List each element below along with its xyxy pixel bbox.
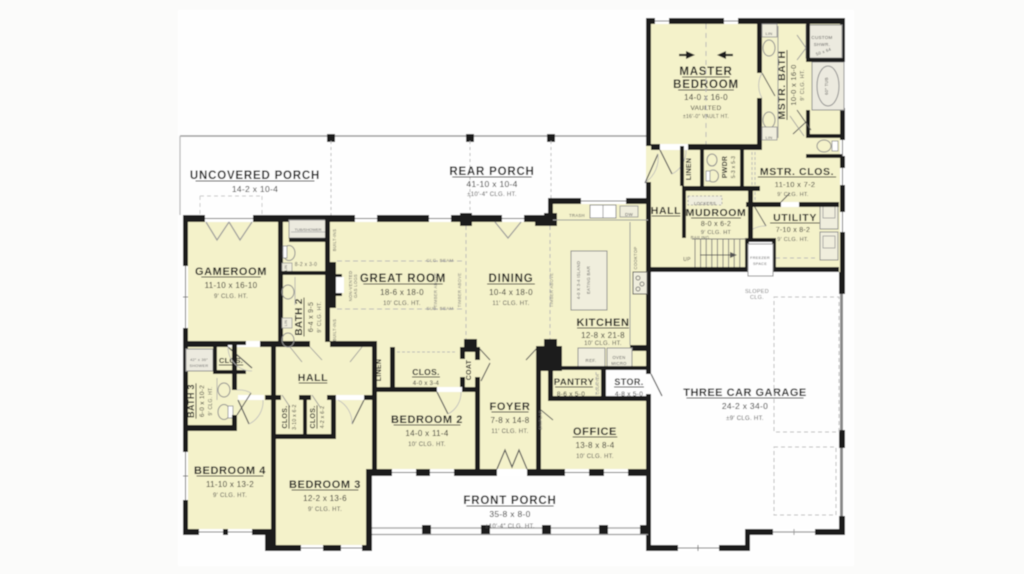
svg-text:STOR.: STOR.: [614, 377, 643, 387]
svg-text:8-0 x 6-2: 8-0 x 6-2: [701, 221, 731, 228]
svg-text:9′ CLG. HT.: 9′ CLG. HT.: [800, 69, 806, 101]
svg-text:TUB/SHOWER: TUB/SHOWER: [294, 227, 321, 232]
svg-text:DINING: DINING: [488, 273, 533, 285]
svg-text:4-0 x 3-4: 4-0 x 3-4: [413, 381, 440, 387]
svg-text:6-0 x 10-2: 6-0 x 10-2: [199, 385, 206, 417]
svg-text:LIN: LIN: [284, 320, 288, 327]
svg-text:UNCOVERED PORCH: UNCOVERED PORCH: [190, 170, 320, 182]
svg-text:MSTR. CLOS.: MSTR. CLOS.: [760, 166, 834, 178]
svg-text:UTILITY: UTILITY: [773, 212, 817, 224]
svg-text:10-4 x 18-0: 10-4 x 18-0: [489, 288, 533, 297]
svg-text:11-10 x 7-2: 11-10 x 7-2: [775, 180, 816, 189]
svg-text:BEDROOM 3: BEDROOM 3: [289, 479, 361, 491]
svg-text:11′ CLG. HT.: 11′ CLG. HT.: [492, 301, 529, 307]
svg-text:8-2 x 3-0: 8-2 x 3-0: [295, 262, 317, 268]
svg-text:9′ CLG. HT.: 9′ CLG. HT.: [208, 387, 214, 416]
svg-text:DW: DW: [625, 212, 634, 217]
svg-text:LIN: LIN: [765, 31, 772, 36]
svg-text:35-8 x 8-0: 35-8 x 8-0: [489, 509, 530, 519]
svg-text:BUILT-INS: BUILT-INS: [332, 319, 337, 341]
svg-text:FOYER: FOYER: [490, 401, 531, 413]
svg-text:CLG. BEAM: CLG. BEAM: [426, 258, 453, 263]
svg-text:LINEN: LINEN: [376, 359, 383, 382]
svg-text:10′ CLG. HT.: 10′ CLG. HT.: [408, 442, 446, 448]
svg-text:TRASH: TRASH: [569, 213, 585, 218]
svg-text:11′ CLG. HT.: 11′ CLG. HT.: [491, 429, 528, 435]
svg-text:COAT: COAT: [466, 359, 473, 380]
svg-text:HALL: HALL: [298, 372, 328, 384]
svg-text:MICRO: MICRO: [611, 361, 627, 366]
svg-text:7-8 x 14-8: 7-8 x 14-8: [490, 416, 529, 425]
svg-text:24-2 x 34-0: 24-2 x 34-0: [722, 401, 768, 411]
svg-text:THREE CAR GARAGE: THREE CAR GARAGE: [683, 387, 807, 399]
svg-text:CLG.: CLG.: [750, 295, 764, 301]
svg-text:4-0 X 3-4 ISLAND: 4-0 X 3-4 ISLAND: [576, 261, 581, 299]
svg-text:LIN: LIN: [765, 135, 772, 140]
svg-text:41-10 x 10-4: 41-10 x 10-4: [466, 179, 517, 189]
svg-text:SHWR.: SHWR.: [814, 42, 831, 47]
svg-text:LIN: LIN: [284, 265, 288, 272]
svg-text:BUILT-INS: BUILT-INS: [332, 229, 337, 251]
svg-text:BATH 2: BATH 2: [294, 298, 305, 335]
svg-text:BEDROOM 2: BEDROOM 2: [391, 414, 463, 426]
svg-text:TIMBER ABOVE: TIMBER ABOVE: [457, 273, 462, 308]
svg-text:CLOS.: CLOS.: [282, 406, 289, 429]
svg-text:14-0 x 11-4: 14-0 x 11-4: [405, 429, 448, 438]
svg-text:PWDR: PWDR: [722, 156, 729, 179]
svg-text:±10′-4″ CLG. HT.: ±10′-4″ CLG. HT.: [485, 524, 535, 530]
svg-text:SHIPLAP: SHIPLAP: [538, 410, 543, 430]
svg-text:14-2 x 10-4: 14-2 x 10-4: [232, 184, 278, 194]
svg-text:MUDROOM: MUDROOM: [686, 207, 747, 219]
svg-text:HALL: HALL: [651, 205, 681, 217]
svg-text:FRONT PORCH: FRONT PORCH: [463, 495, 556, 507]
svg-text:OVEN: OVEN: [612, 355, 625, 360]
svg-text:3-10 x 6-2: 3-10 x 6-2: [292, 404, 298, 430]
svg-text:10′ CLG. HT.: 10′ CLG. HT.: [383, 301, 421, 307]
svg-text:KITCHEN: KITCHEN: [576, 317, 629, 329]
svg-text:±10′-4″ CLG. HT.: ±10′-4″ CLG. HT.: [467, 192, 517, 198]
svg-text:COOKTOP: COOKTOP: [633, 247, 638, 270]
svg-text:COUNTER: COUNTER: [596, 374, 600, 395]
svg-text:60″ TUB: 60″ TUB: [824, 77, 829, 95]
svg-text:12-8 x 21-8: 12-8 x 21-8: [581, 331, 625, 340]
svg-text:6-4 x 9-5: 6-4 x 9-5: [308, 302, 315, 332]
svg-text:UP: UP: [683, 257, 691, 263]
svg-text:CLOS.: CLOS.: [310, 406, 317, 429]
svg-text:SPACE: SPACE: [753, 262, 767, 266]
svg-text:LINEN: LINEN: [686, 158, 693, 181]
svg-text:SHOWER: SHOWER: [190, 364, 209, 368]
svg-text:CLOS.: CLOS.: [219, 356, 243, 365]
svg-text:BATH 3: BATH 3: [186, 384, 196, 418]
svg-text:9′ CLG. HT.: 9′ CLG. HT.: [213, 493, 247, 499]
svg-text:PANTRY: PANTRY: [554, 377, 595, 388]
svg-text:TIMBER ABOVE: TIMBER ABOVE: [433, 273, 438, 308]
svg-text:18-6 x 18-0: 18-6 x 18-0: [380, 288, 424, 297]
svg-text:7-10 x 8-2: 7-10 x 8-2: [776, 227, 811, 234]
svg-text:11-10 x 16-10: 11-10 x 16-10: [205, 281, 258, 290]
svg-text:SUB. BEAM: SUB. BEAM: [426, 306, 453, 311]
svg-text:BEDROOM 4: BEDROOM 4: [194, 465, 266, 477]
svg-text:GAS LOGS: GAS LOGS: [353, 274, 358, 298]
svg-text:9′ CLG. HT.: 9′ CLG. HT.: [308, 507, 342, 513]
svg-text:LOCKERS: LOCKERS: [694, 201, 716, 206]
svg-text:4-2 x 6-2: 4-2 x 6-2: [320, 406, 326, 428]
svg-text:42″ x 36″: 42″ x 36″: [190, 358, 208, 362]
svg-text:±9′ CLG. HT.: ±9′ CLG. HT.: [726, 416, 764, 422]
svg-text:OFFICE: OFFICE: [573, 426, 617, 438]
svg-text:9′ CLG. HT.: 9′ CLG. HT.: [214, 294, 248, 300]
svg-text:REAR PORCH: REAR PORCH: [449, 166, 534, 178]
svg-text:13-8 x 8-4: 13-8 x 8-4: [575, 441, 614, 450]
svg-text:TIMBER ABOVE: TIMBER ABOVE: [549, 273, 554, 308]
svg-text:EATING BAR: EATING BAR: [586, 266, 591, 294]
svg-text:10-0 x 16-0: 10-0 x 16-0: [789, 64, 798, 105]
svg-text:5-3 x 5-3: 5-3 x 5-3: [731, 156, 737, 178]
svg-text:10′ CLG. HT.: 10′ CLG. HT.: [584, 341, 622, 347]
svg-text:CUSTOM: CUSTOM: [811, 35, 832, 40]
svg-text:REF.: REF.: [586, 358, 597, 363]
svg-text:10′ CLG. HT.: 10′ CLG. HT.: [576, 454, 614, 460]
svg-text:FREEZER: FREEZER: [750, 256, 770, 260]
svg-text:CLOS.: CLOS.: [412, 367, 439, 377]
svg-text:9′ CLG. HT.: 9′ CLG. HT.: [317, 301, 323, 333]
svg-text:12-2 x 13-6: 12-2 x 13-6: [303, 494, 347, 503]
svg-text:9′ CLG. HT.: 9′ CLG. HT.: [777, 237, 809, 243]
svg-text:GAMEROOM: GAMEROOM: [195, 266, 267, 278]
svg-text:9′ CLG. HT.: 9′ CLG. HT.: [777, 192, 809, 198]
svg-text:11-10 x 13-2: 11-10 x 13-2: [206, 480, 254, 489]
